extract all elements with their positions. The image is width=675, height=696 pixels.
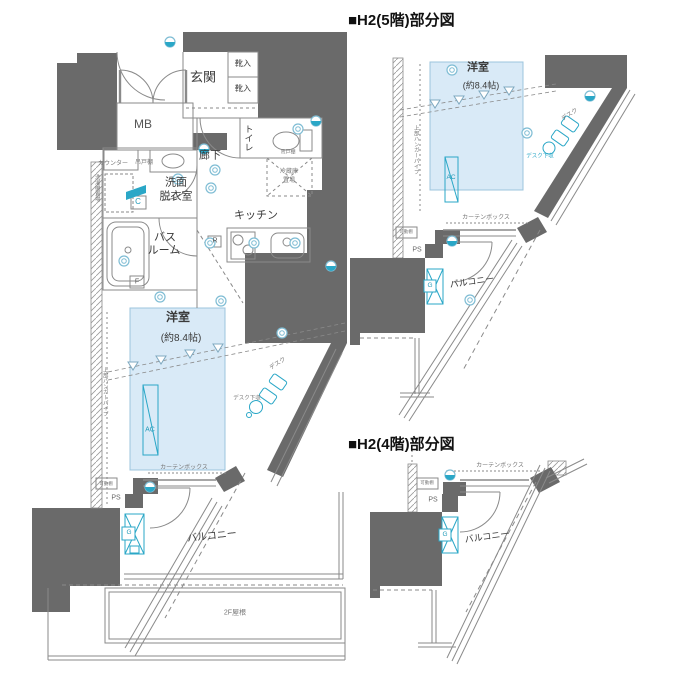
partial-4f-walls — [370, 467, 560, 598]
partial-5f-room-size: (約8.4帖) — [463, 82, 500, 91]
room-label-mb: MB — [134, 118, 152, 130]
hanger-pipe-label: 上部ハンガーパイプ — [101, 367, 107, 417]
partial-5f-ps-label: PS — [412, 247, 421, 254]
room-label-western: 洋室 — [166, 311, 190, 323]
room-label-hallway: 廊下 — [199, 151, 221, 162]
room-label-kitchen: キッチン — [234, 211, 278, 222]
movable-shelf-label: 可動棚 — [99, 482, 113, 487]
counter-label: カウンター — [98, 161, 128, 167]
partial-5f-hanger-pipe-label: 上部ハンガーパイプ — [412, 125, 418, 175]
partial-4f-g-label: G — [442, 532, 447, 539]
fridge-label-1: 冷蔵庫 — [280, 169, 298, 175]
room-label-toilet: トイレ — [244, 125, 253, 152]
desk-storage-label: デスク下収 — [233, 396, 261, 402]
room-size-label: (約8.4帖) — [161, 334, 202, 344]
shoe-box-upper-label: 靴入 — [235, 60, 251, 68]
partial-4f-ps-label: PS — [428, 497, 437, 504]
partial-4f-movable-shelf-label: 可動棚 — [420, 481, 434, 486]
partial-5f-movable-shelf-label: 可動棚 — [399, 230, 413, 235]
equip-label-c: C — [135, 198, 141, 206]
partial-4f-icons — [445, 470, 455, 480]
floor-plan-drawing — [0, 0, 675, 696]
roof-label: 2F屋根 — [224, 610, 246, 617]
floor-plan-canvas: 玄関 靴入 靴入 MB トイレ 吊戸棚 廊下 カウンター 吊戸棚 洗濯機置場 洗… — [0, 0, 675, 696]
partial-5f-header: ■H2(5階)部分図 — [348, 13, 455, 28]
toilet-shelf-label: 吊戸棚 — [280, 151, 295, 156]
ac-label: AC — [145, 427, 155, 434]
equip-label-f: F — [135, 279, 139, 286]
partial-4f-curtain-box-label: カーテンボックス — [476, 463, 524, 469]
room-label-bath-1: バス — [154, 233, 176, 244]
hanging-shelf-label: 吊戸棚 — [135, 160, 153, 166]
partial-5f-curtain-box-label: カーテンボックス — [462, 215, 510, 221]
partial-4f-header: ■H2(4階)部分図 — [348, 437, 455, 452]
room-label-washroom-2: 脱衣室 — [160, 192, 193, 203]
washer-place-label: 洗濯機置場 — [93, 174, 99, 202]
room-label-genkan: 玄関 — [190, 71, 216, 84]
partial-5f-g-label: G — [427, 283, 432, 290]
partial-5f-room-label: 洋室 — [467, 63, 489, 74]
room-label-bath-2: ルーム — [148, 246, 181, 257]
fridge-label-2: 置場 — [283, 178, 295, 184]
g-label: G — [126, 530, 131, 537]
ps-label: PS — [111, 495, 120, 502]
partial-5f-desk-storage-label: デスク下収 — [526, 154, 554, 160]
curtain-box-label: カーテンボックス — [160, 465, 208, 471]
shoe-box-lower-label: 靴入 — [235, 85, 251, 93]
room-label-washroom-1: 洗面 — [165, 178, 187, 189]
partial-5f-ac-label: AC — [446, 175, 455, 182]
equip-label-r: R — [212, 238, 217, 245]
